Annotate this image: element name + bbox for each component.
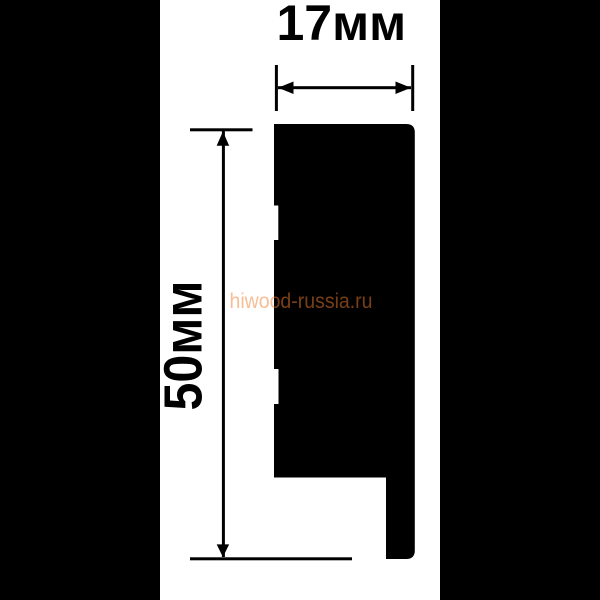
svg-text:hiwood-russia.ru: hiwood-russia.ru <box>230 290 373 313</box>
svg-text:17мм: 17мм <box>277 0 407 51</box>
svg-text:50мм: 50мм <box>153 281 213 411</box>
